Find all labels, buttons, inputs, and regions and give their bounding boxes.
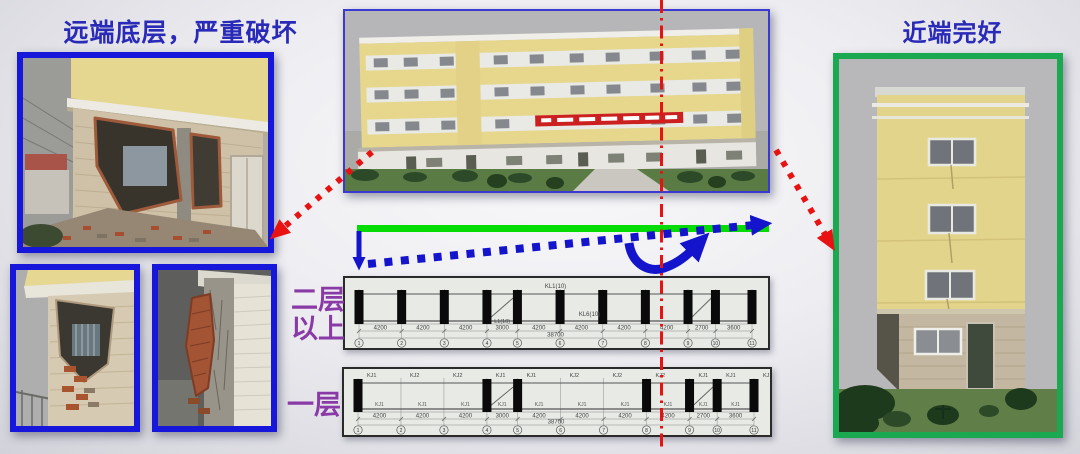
plan-drawing-first-floor: KJ1KJ2KJ2KJ1KJ1KJ2KJ2KJ2KJ1KJ1KJ1KJ1KJ1K… xyxy=(342,367,772,437)
svg-text:KJ1: KJ1 xyxy=(461,402,470,408)
slide-canvas: 远端底层，严重破坏 近端完好 xyxy=(0,0,1080,454)
svg-text:2700: 2700 xyxy=(695,326,709,332)
svg-text:4200: 4200 xyxy=(575,414,589,420)
svg-text:KJ1: KJ1 xyxy=(621,402,630,408)
svg-text:4200: 4200 xyxy=(416,414,430,420)
label-first-floor: 一层 xyxy=(287,391,341,420)
svg-text:38700: 38700 xyxy=(548,420,565,426)
photo-building-overview xyxy=(343,9,770,193)
svg-text:11: 11 xyxy=(751,428,756,434)
svg-text:3600: 3600 xyxy=(727,326,741,332)
svg-text:KJ2: KJ2 xyxy=(656,373,665,379)
svg-text:4200: 4200 xyxy=(416,326,430,332)
green-roof-level-bar xyxy=(357,225,769,232)
svg-text:3000: 3000 xyxy=(496,414,510,420)
photo-damaged-column xyxy=(152,264,277,432)
svg-text:38700: 38700 xyxy=(547,333,564,339)
svg-text:4: 4 xyxy=(486,341,489,347)
svg-text:2: 2 xyxy=(400,341,403,347)
svg-text:KJ1: KJ1 xyxy=(578,402,587,408)
svg-text:4200: 4200 xyxy=(373,414,387,420)
svg-text:4200: 4200 xyxy=(532,414,546,420)
svg-text:KJ1: KJ1 xyxy=(731,402,740,408)
svg-text:1: 1 xyxy=(358,341,361,347)
svg-text:KJ1: KJ1 xyxy=(726,373,735,379)
svg-text:8: 8 xyxy=(645,428,648,434)
svg-text:7: 7 xyxy=(602,428,605,434)
plan-drawing-upper-floors: KL1(10)KL6(10)42004200420030004200420042… xyxy=(343,276,770,350)
svg-text:2700: 2700 xyxy=(697,414,711,420)
svg-text:KJ1: KJ1 xyxy=(418,402,427,408)
svg-text:KJ1: KJ1 xyxy=(535,402,544,408)
svg-text:3000: 3000 xyxy=(496,326,510,332)
label-upper-floors: 二层 以上 xyxy=(291,286,345,344)
photo-damaged-wall-large xyxy=(17,52,274,253)
svg-text:8: 8 xyxy=(644,341,647,347)
svg-text:4200: 4200 xyxy=(575,326,589,332)
svg-text:4200: 4200 xyxy=(532,326,546,332)
svg-text:KL6(10): KL6(10) xyxy=(579,312,600,318)
svg-text:KJ1: KJ1 xyxy=(367,373,376,379)
title-far-end-damage: 远端底层，严重破坏 xyxy=(28,13,333,49)
svg-text:10: 10 xyxy=(714,428,720,434)
svg-text:10: 10 xyxy=(713,341,719,347)
svg-text:KJ2: KJ2 xyxy=(453,373,462,379)
svg-text:4200: 4200 xyxy=(618,414,632,420)
svg-text:KJ1: KJ1 xyxy=(763,373,770,379)
photo-damaged-corner xyxy=(10,264,140,432)
svg-text:3600: 3600 xyxy=(729,414,743,420)
svg-text:L1(10): L1(10) xyxy=(494,319,510,325)
blue-rotation-arrow xyxy=(629,243,691,269)
svg-text:KJ1: KJ1 xyxy=(375,402,384,408)
svg-text:KJ1: KJ1 xyxy=(664,402,673,408)
svg-text:KJ1: KJ1 xyxy=(498,402,507,408)
svg-text:4200: 4200 xyxy=(374,326,388,332)
red-dotted-arrow-right xyxy=(776,150,826,236)
svg-text:9: 9 xyxy=(688,428,691,434)
svg-text:KJ2: KJ2 xyxy=(410,373,419,379)
svg-text:6: 6 xyxy=(559,428,562,434)
svg-text:7: 7 xyxy=(601,341,604,347)
svg-text:3: 3 xyxy=(443,341,446,347)
svg-text:1: 1 xyxy=(357,428,360,434)
title-near-end-intact: 近端完好 xyxy=(850,13,1055,48)
svg-text:KJ2: KJ2 xyxy=(570,373,579,379)
svg-text:KJ1: KJ1 xyxy=(527,373,536,379)
svg-text:4200: 4200 xyxy=(661,414,675,420)
svg-text:KL1(10): KL1(10) xyxy=(545,284,566,290)
svg-text:4: 4 xyxy=(486,428,489,434)
svg-text:6: 6 xyxy=(559,341,562,347)
svg-text:11: 11 xyxy=(749,341,754,347)
svg-text:4200: 4200 xyxy=(617,326,631,332)
photo-intact-near-end xyxy=(833,53,1063,438)
svg-text:KJ2: KJ2 xyxy=(613,373,622,379)
svg-text:2: 2 xyxy=(400,428,403,434)
svg-text:3: 3 xyxy=(443,428,446,434)
svg-text:5: 5 xyxy=(516,428,519,434)
svg-text:4200: 4200 xyxy=(660,326,674,332)
svg-text:9: 9 xyxy=(687,341,690,347)
svg-text:KJ1: KJ1 xyxy=(496,373,505,379)
blue-tilt-dashed-arrow xyxy=(368,225,754,264)
svg-text:5: 5 xyxy=(516,341,519,347)
svg-text:4200: 4200 xyxy=(459,414,473,420)
svg-text:KJ1: KJ1 xyxy=(699,373,708,379)
svg-text:4200: 4200 xyxy=(459,326,473,332)
svg-text:KJ1: KJ1 xyxy=(699,402,708,408)
